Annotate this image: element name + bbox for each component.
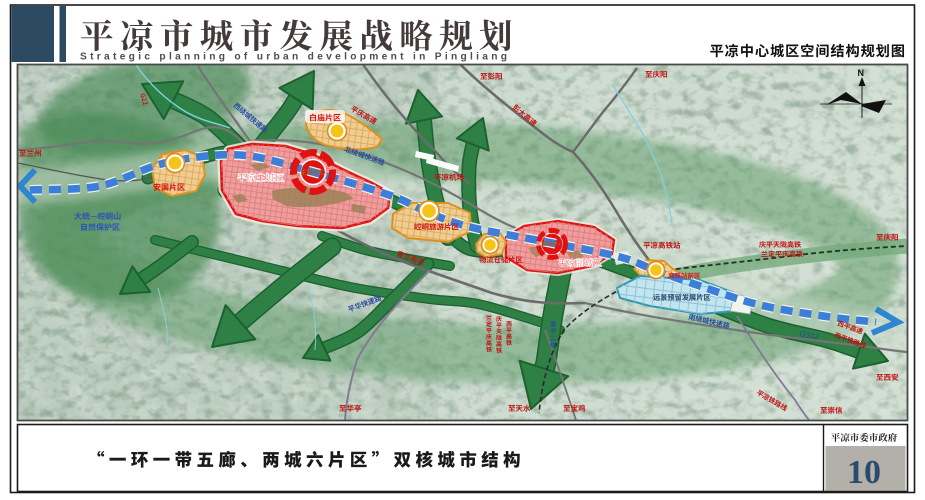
svg-text:N: N	[858, 68, 865, 78]
svg-text:10: 10	[847, 454, 881, 491]
svg-text:Strategic planning of urban de: Strategic planning of urban development …	[80, 52, 510, 63]
